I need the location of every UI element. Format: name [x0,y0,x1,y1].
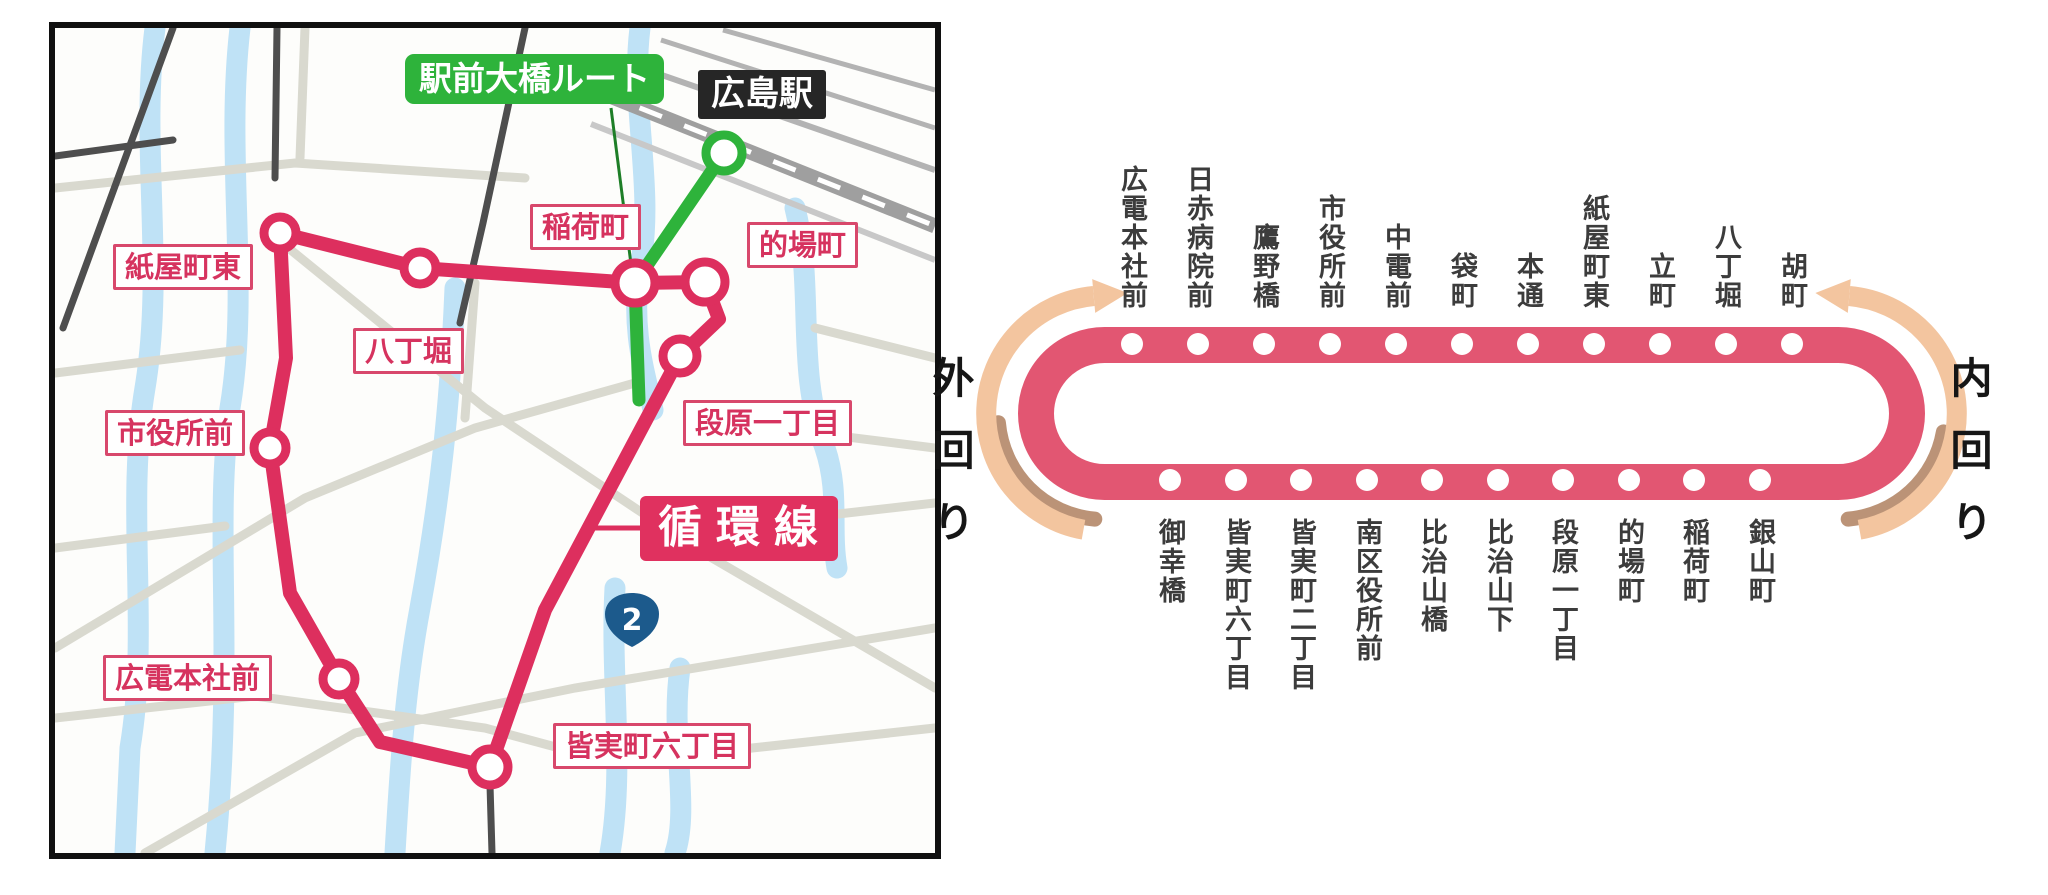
map-label-hatchobori: 八丁堀 [353,328,464,374]
station-dot [1319,333,1341,355]
station-dot [1715,333,1737,355]
map-label-minamimachi-rokuchome: 皆実町六丁目 [553,723,751,769]
loop-top-station: 本通 [1514,252,1541,310]
station-dot [1583,333,1605,355]
loop-top-station: 市役所前 [1316,194,1343,310]
loop-bottom-station: 銀山町 [1746,518,1773,605]
loop-top-station: 胡町 [1778,252,1805,310]
station-dot [1552,469,1574,491]
loop-bottom-station: 皆実町二丁目 [1287,518,1314,692]
map-label-shiyakusho-mae: 市役所前 [105,410,245,456]
station-dot [1451,333,1473,355]
street [300,28,305,158]
street [815,328,935,358]
loop-top-station: 広電本社前 [1118,165,1145,310]
inner-loop-direction-label: 内回り [1947,356,1989,572]
station-marker-shiyakusho-mae [254,432,286,464]
loop-bottom-station: 御幸橋 [1156,518,1183,605]
loop-top-station: 日赤病院前 [1184,165,1211,310]
loop-bottom-station: 的場町 [1615,518,1642,605]
major-road [490,785,492,853]
outer-loop-direction-label: 外回り [929,356,971,572]
station-dot [1356,469,1378,491]
loop-bottom-station: 比治山橋 [1418,518,1445,634]
station-dot [1649,333,1671,355]
loop-top-station: 中電前 [1382,223,1409,310]
hiroshima-station-label: 広島駅 [698,70,826,119]
station-dot [1290,469,1312,491]
station-dot [1618,469,1640,491]
station-dot [1121,333,1143,355]
map-label-hiroden-honsha-mae: 広電本社前 [103,655,272,701]
major-road [275,28,277,178]
station-marker-hiroden-honsha-mae [323,663,355,695]
station-dot [1159,469,1181,491]
station-marker-minamimachi-rokuchome [472,749,508,785]
station-dot [1749,469,1771,491]
route-2-badge-number: 2 [622,603,643,638]
station-marker-matobacho [685,262,725,302]
loop-bottom-station: 稲荷町 [1680,518,1707,605]
loop-bottom-station: 南区役所前 [1353,518,1380,663]
station-dot [1517,333,1539,355]
station-dot [1253,333,1275,355]
map-label-danbara-itchome: 段原一丁目 [683,400,852,446]
route-map-panel: 2 駅前大橋ルート 広島駅 稲荷町 的場町 紙屋町東 八丁堀 市役所前 段原一丁… [49,22,941,859]
loop-top-station: 立町 [1646,252,1673,310]
station-marker-inarimachi [615,263,655,303]
loop-top-station: 紙屋町東 [1580,194,1607,310]
station-dot [1187,333,1209,355]
inner-loop-arrowhead [1815,279,1850,313]
loop-top-station: 鷹野橋 [1250,223,1277,310]
map-label-kamiyacho-higashi: 紙屋町東 [113,244,253,290]
map-label-inarimachi: 稲荷町 [530,204,641,250]
station-dot [1385,333,1407,355]
loop-top-station: 袋町 [1448,252,1475,310]
station-dot [1421,469,1443,491]
station-dot [1487,469,1509,491]
station-dot [1683,469,1705,491]
station-dot [1781,333,1803,355]
loop-bottom-station: 皆実町六丁目 [1222,518,1249,692]
loop-bottom-station: 段原一丁目 [1549,518,1576,663]
map-label-matobacho: 的場町 [747,222,858,268]
loop-ring [1036,345,1907,482]
loop-line-title-label: 循環線 [640,496,838,561]
station-marker-kamiyacho-higashi [264,217,296,249]
green-route-label: 駅前大橋ルート [405,54,664,104]
station-marker-danbara-itchome [663,339,697,373]
screenshot-stage: 2 駅前大橋ルート 広島駅 稲荷町 的場町 紙屋町東 八丁堀 市役所前 段原一丁… [0,0,2048,895]
station-dot [1225,469,1247,491]
loop-bottom-station: 比治山下 [1484,518,1511,634]
station-marker-hiroshima-station [706,135,742,171]
loop-top-station: 八丁堀 [1712,223,1739,310]
station-marker-hatchobori [404,252,436,284]
